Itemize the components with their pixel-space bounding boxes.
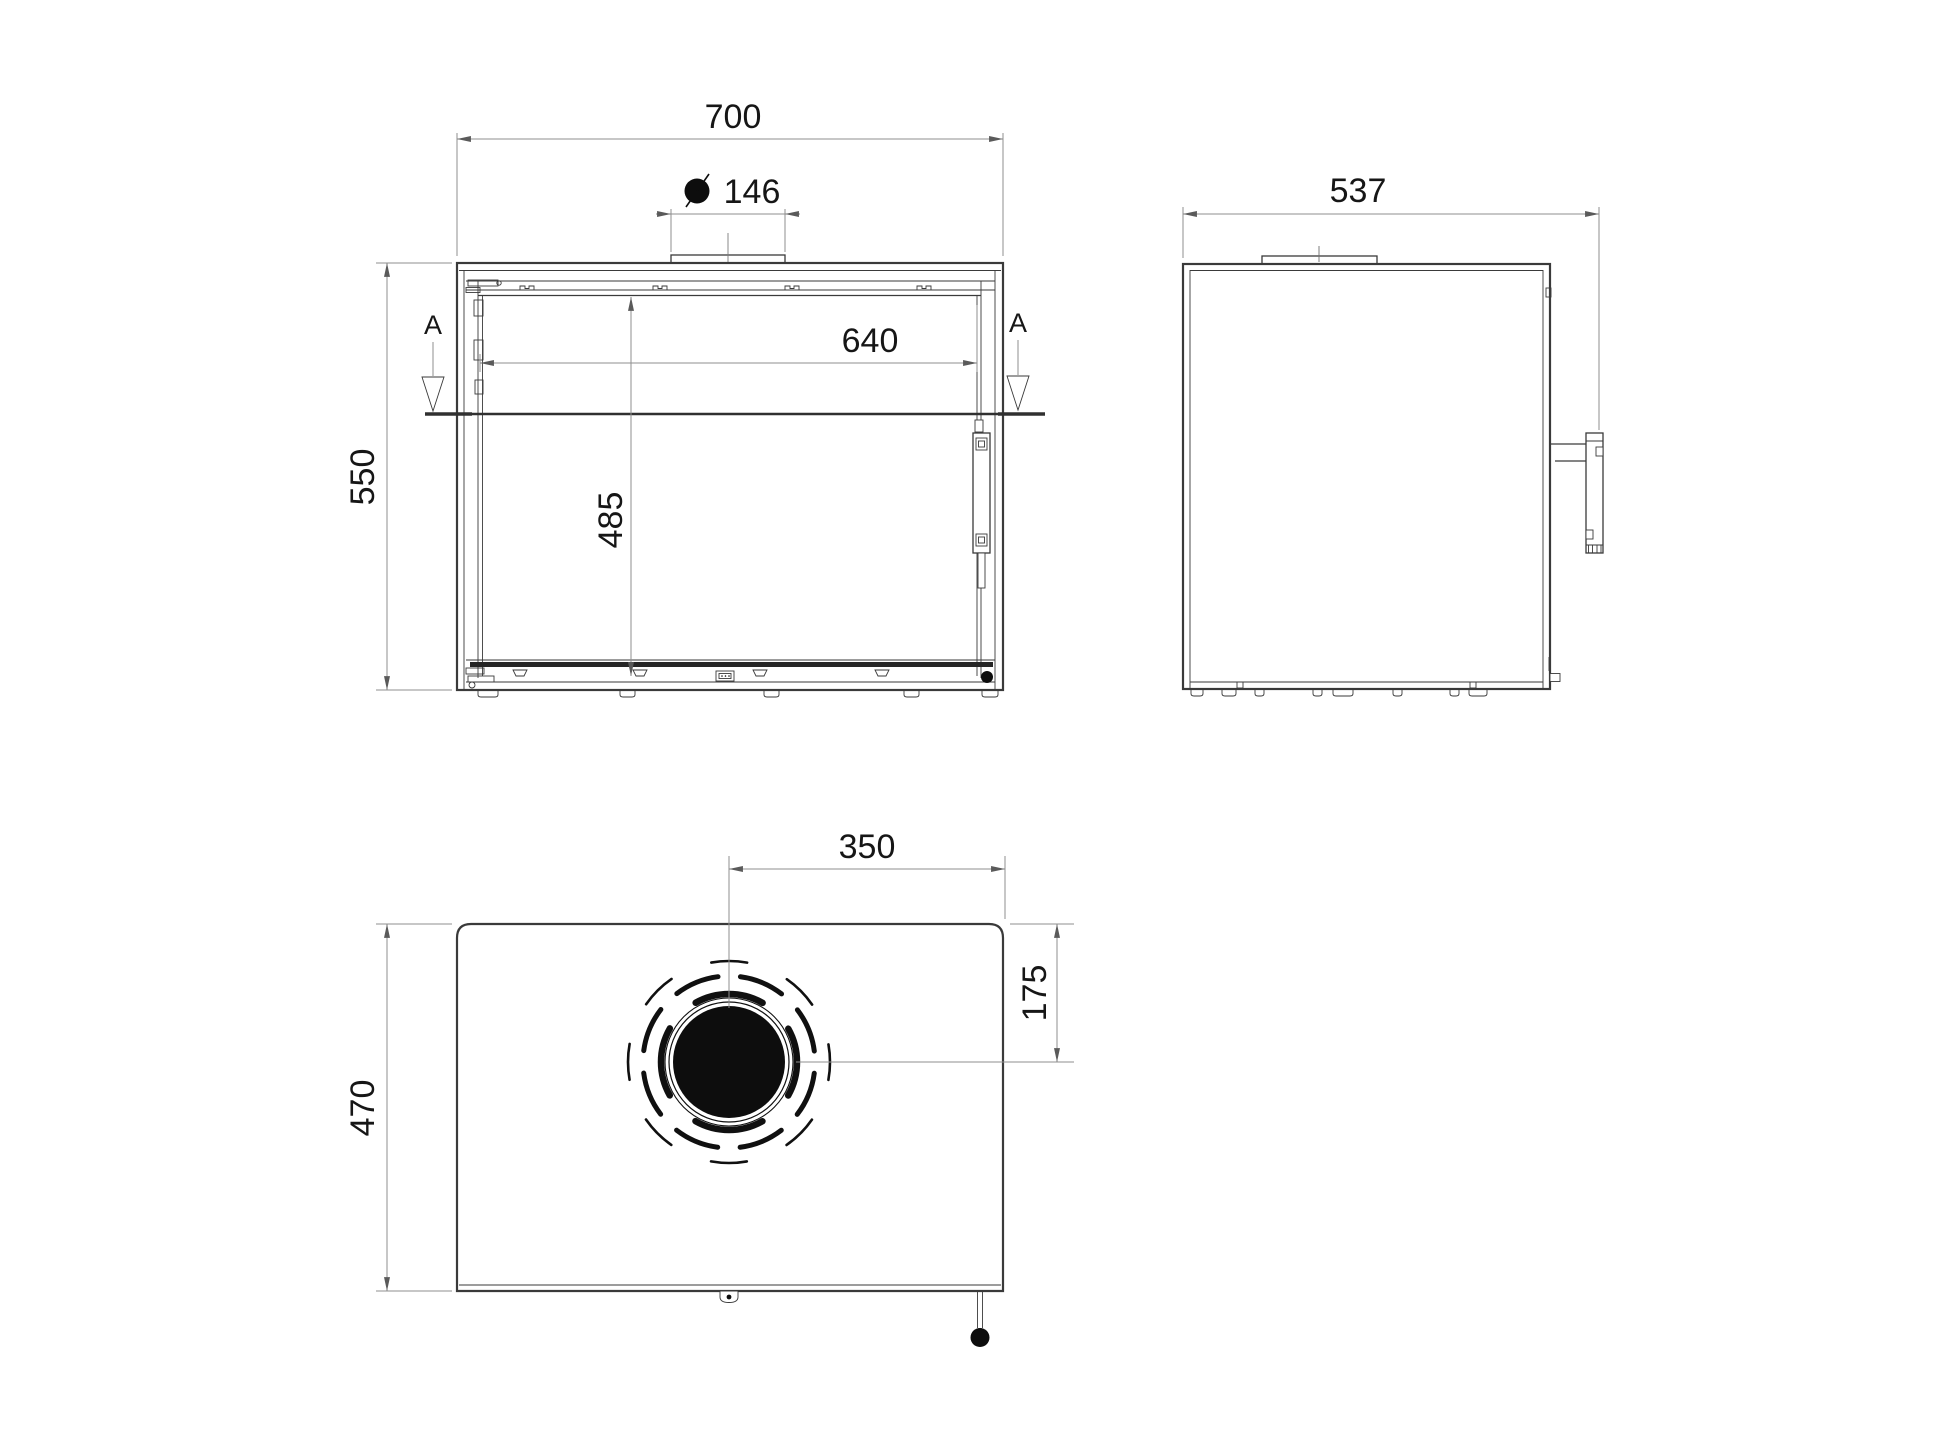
section-label-right: A bbox=[1009, 308, 1027, 338]
diameter-symbol-icon bbox=[685, 174, 710, 207]
dim-label-470: 470 bbox=[344, 1080, 382, 1137]
dim-label-485: 485 bbox=[592, 492, 630, 549]
front-view bbox=[457, 233, 1003, 697]
bottom-center-fastener bbox=[720, 1291, 738, 1303]
door-handle-top bbox=[971, 1291, 990, 1347]
technical-drawing: A A 700 146 640 485 bbox=[0, 0, 1946, 1441]
drawing-canvas: A A 700 146 640 485 bbox=[0, 0, 1946, 1441]
dim-label-350: 350 bbox=[839, 828, 896, 866]
section-label-left: A bbox=[424, 310, 442, 340]
section-arrow-left bbox=[422, 377, 444, 411]
brand-label-plate bbox=[716, 671, 734, 681]
dim-label-146: 146 bbox=[724, 173, 781, 211]
dim-label-175: 175 bbox=[1016, 965, 1054, 1022]
side-view bbox=[1183, 246, 1603, 696]
side-body-outline bbox=[1183, 264, 1550, 689]
dim-label-700: 700 bbox=[705, 98, 762, 136]
door-handle-side bbox=[1550, 433, 1603, 553]
dim-label-537: 537 bbox=[1330, 172, 1387, 210]
dim-label-550: 550 bbox=[344, 449, 382, 506]
dimension-body-depth: 470 bbox=[344, 924, 452, 1291]
dim-label-640: 640 bbox=[842, 322, 899, 360]
section-arrow-right bbox=[1007, 376, 1029, 410]
top-view bbox=[457, 924, 1003, 1347]
front-body-outline bbox=[457, 263, 1003, 690]
door-pivot-pin bbox=[981, 671, 993, 683]
